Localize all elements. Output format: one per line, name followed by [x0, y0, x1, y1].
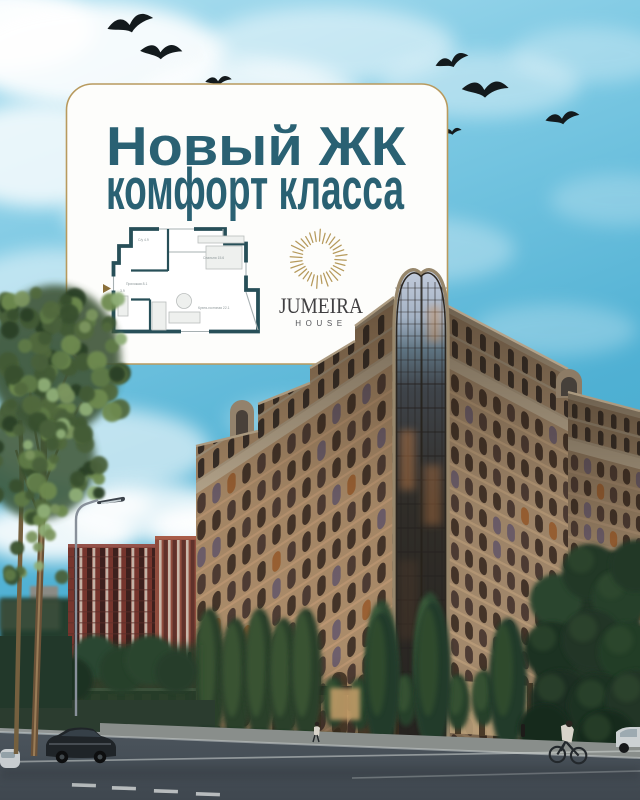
svg-text:Прихожая 8.1: Прихожая 8.1 [126, 282, 147, 286]
svg-text:Спальня 15.6: Спальня 15.6 [203, 256, 224, 260]
svg-text:HOUSE: HOUSE [295, 319, 346, 328]
svg-text:Кухня-гостиная 22.1: Кухня-гостиная 22.1 [198, 306, 230, 310]
svg-text:комфорт класса: комфорт класса [106, 157, 404, 222]
svg-text:С/у 4.9: С/у 4.9 [138, 238, 149, 242]
svg-text:3.9: 3.9 [120, 289, 125, 293]
svg-text:JUMEIRA: JUMEIRA [279, 293, 363, 318]
